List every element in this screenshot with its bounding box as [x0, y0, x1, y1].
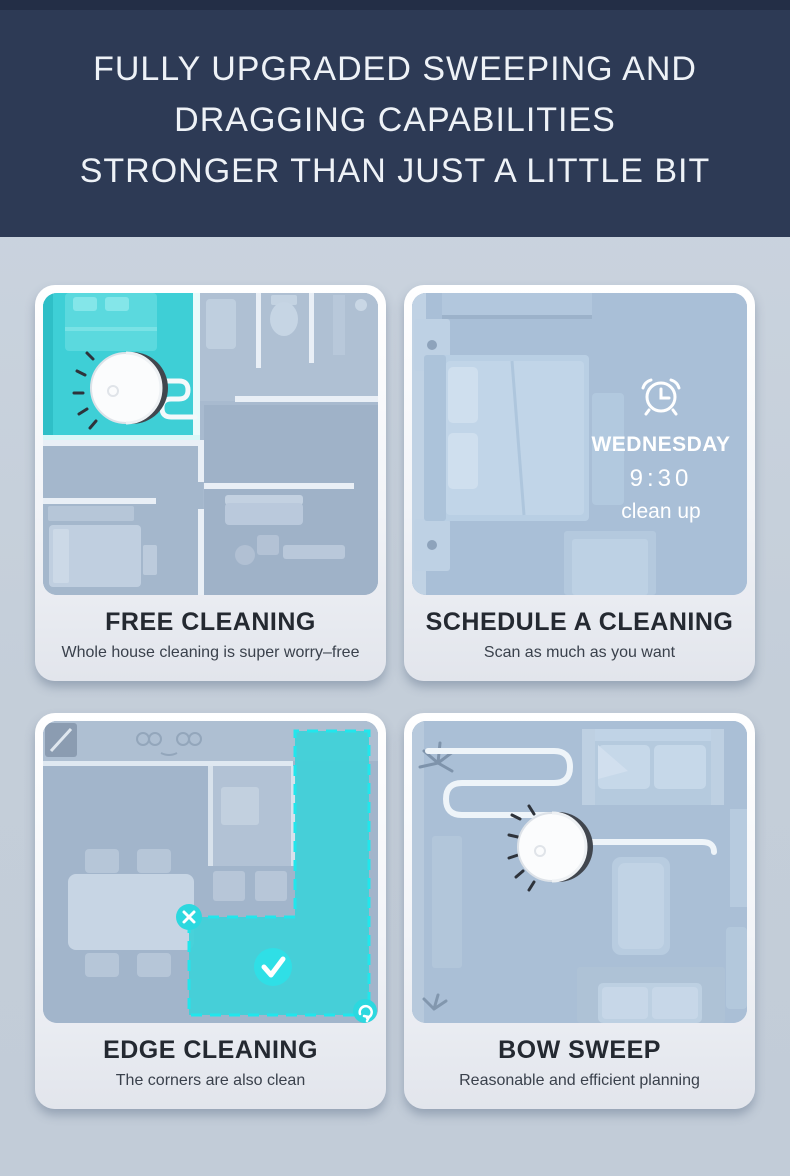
- bed-large: [424, 355, 589, 521]
- sofa-small: [225, 503, 303, 525]
- checkmark-icon: [254, 948, 292, 986]
- header-line-1: FULLY UPGRADED SWEEPING AND: [93, 45, 697, 93]
- schedule-action: clean up: [621, 500, 700, 524]
- card-subtitle-schedule: Scan as much as you want: [414, 644, 745, 662]
- toilet: [270, 302, 298, 336]
- card-title-edge: EDGE CLEANING: [45, 1036, 376, 1065]
- card-title-schedule: SCHEDULE A CLEANING: [414, 608, 745, 637]
- close-icon: [176, 904, 202, 930]
- edge-cleaning-art: [43, 721, 378, 1023]
- schedule-time: 9:30: [630, 465, 693, 493]
- bedroom-schedule-scene: WEDNESDAY 9:30 clean up: [412, 293, 747, 595]
- card-subtitle-bow: Reasonable and efficient planning: [414, 1072, 745, 1090]
- card-title-free-cleaning: FREE CLEANING: [45, 608, 376, 637]
- card-title-bow: BOW SWEEP: [414, 1036, 745, 1065]
- kitchen-island: [221, 787, 259, 825]
- schedule-overlay: WEDNESDAY 9:30 clean up: [577, 371, 745, 524]
- card-footer: FREE CLEANING Whole house cleaning is su…: [43, 595, 378, 681]
- alarm-clock-icon: [637, 371, 685, 419]
- feature-cards-grid: FREE CLEANING Whole house cleaning is su…: [0, 237, 790, 1109]
- floorplan-free-cleaning: [43, 293, 378, 595]
- dining-table: [68, 874, 194, 950]
- header-line-3: STRONGER THAN JUST A LITTLE BIT: [80, 147, 711, 195]
- floorplan-free-cleaning-art: [43, 293, 378, 595]
- floorplan-edge-cleaning: [43, 721, 378, 1023]
- rotate-icon: [353, 999, 377, 1023]
- card-subtitle-edge: The corners are also clean: [45, 1072, 376, 1090]
- floorplan-bow-sweep: [412, 721, 747, 1023]
- card-footer: EDGE CLEANING The corners are also clean: [43, 1023, 378, 1109]
- card-bow-sweep: BOW SWEEP Reasonable and efficient plann…: [404, 713, 755, 1109]
- card-subtitle-free-cleaning: Whole house cleaning is super worry–free: [45, 644, 376, 662]
- header-line-2: DRAGGING CAPABILITIES: [174, 96, 616, 144]
- card-footer: SCHEDULE A CLEANING Scan as much as you …: [412, 595, 747, 681]
- sofa-large: [582, 729, 724, 805]
- card-footer: BOW SWEEP Reasonable and efficient plann…: [412, 1023, 747, 1109]
- card-edge-cleaning: EDGE CLEANING The corners are also clean: [35, 713, 386, 1109]
- card-free-cleaning: FREE CLEANING Whole house cleaning is su…: [35, 285, 386, 681]
- page-header: FULLY UPGRADED SWEEPING AND DRAGGING CAP…: [0, 0, 790, 237]
- schedule-day: WEDNESDAY: [591, 433, 730, 457]
- bow-sweep-art: [412, 721, 747, 1023]
- card-schedule-cleaning: WEDNESDAY 9:30 clean up SCHEDULE A CLEAN…: [404, 285, 755, 681]
